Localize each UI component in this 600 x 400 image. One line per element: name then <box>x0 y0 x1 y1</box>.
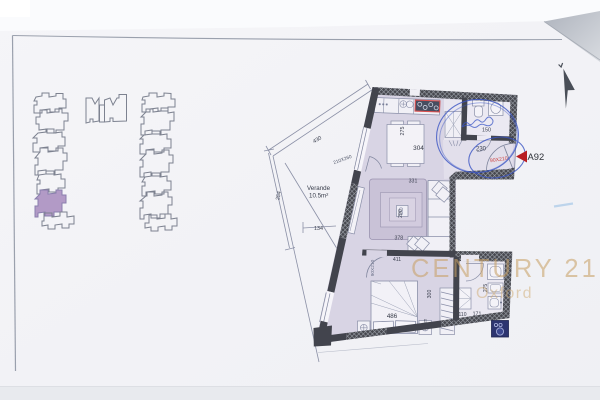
svg-text:110: 110 <box>459 312 467 318</box>
svg-text:304: 304 <box>413 145 424 152</box>
svg-text:90X210: 90X210 <box>370 259 376 276</box>
svg-text:331: 331 <box>409 179 418 185</box>
svg-text:171: 171 <box>473 312 482 318</box>
svg-text:230: 230 <box>476 147 487 153</box>
svg-text:275: 275 <box>400 127 406 136</box>
svg-text:134: 134 <box>314 226 323 232</box>
svg-text:25: 25 <box>423 318 428 323</box>
svg-text:378: 378 <box>394 236 403 242</box>
svg-text:10.5m²: 10.5m² <box>309 193 328 200</box>
svg-text:300: 300 <box>427 290 433 299</box>
svg-text:411: 411 <box>393 257 401 263</box>
svg-text:A92: A92 <box>528 151 545 162</box>
svg-text:290: 290 <box>398 209 404 218</box>
svg-text:486: 486 <box>387 313 398 320</box>
svg-text:Oxford: Oxford <box>476 285 533 302</box>
svg-text:Verande: Verande <box>307 185 331 192</box>
svg-text:150: 150 <box>482 128 491 134</box>
svg-text:CENTURY 21: CENTURY 21 <box>411 255 599 283</box>
